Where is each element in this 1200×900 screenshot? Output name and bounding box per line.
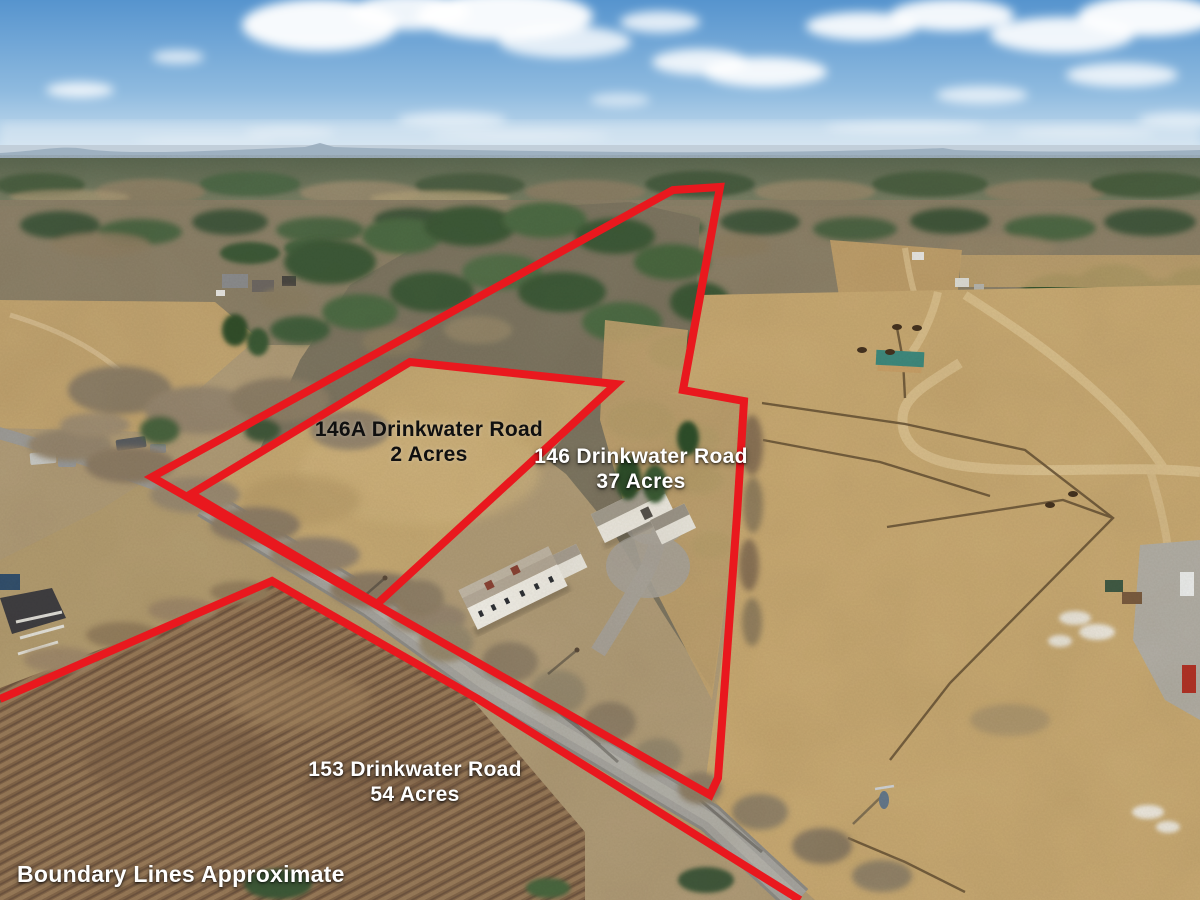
parcel-label-153: 153 Drinkwater Road 54 Acres — [308, 757, 521, 807]
parcel-road-153: 153 Drinkwater Road — [308, 757, 521, 782]
parcel-acres-146: 37 Acres — [534, 469, 747, 494]
sky — [0, 0, 1200, 165]
parcel-label-146: 146 Drinkwater Road 37 Acres — [534, 444, 747, 494]
aerial-property-photo: 146A Drinkwater Road 2 Acres 146 Drinkwa… — [0, 0, 1200, 900]
texture-grain — [0, 155, 1200, 900]
parcel-label-146a: 146A Drinkwater Road 2 Acres — [315, 417, 543, 467]
parcel-road-146a: 146A Drinkwater Road — [315, 417, 543, 442]
parcel-acres-146a: 2 Acres — [315, 442, 543, 467]
disclaimer: Boundary Lines Approximate — [17, 861, 345, 888]
parcel-road-146: 146 Drinkwater Road — [534, 444, 747, 469]
parcel-acres-153: 54 Acres — [308, 782, 521, 807]
